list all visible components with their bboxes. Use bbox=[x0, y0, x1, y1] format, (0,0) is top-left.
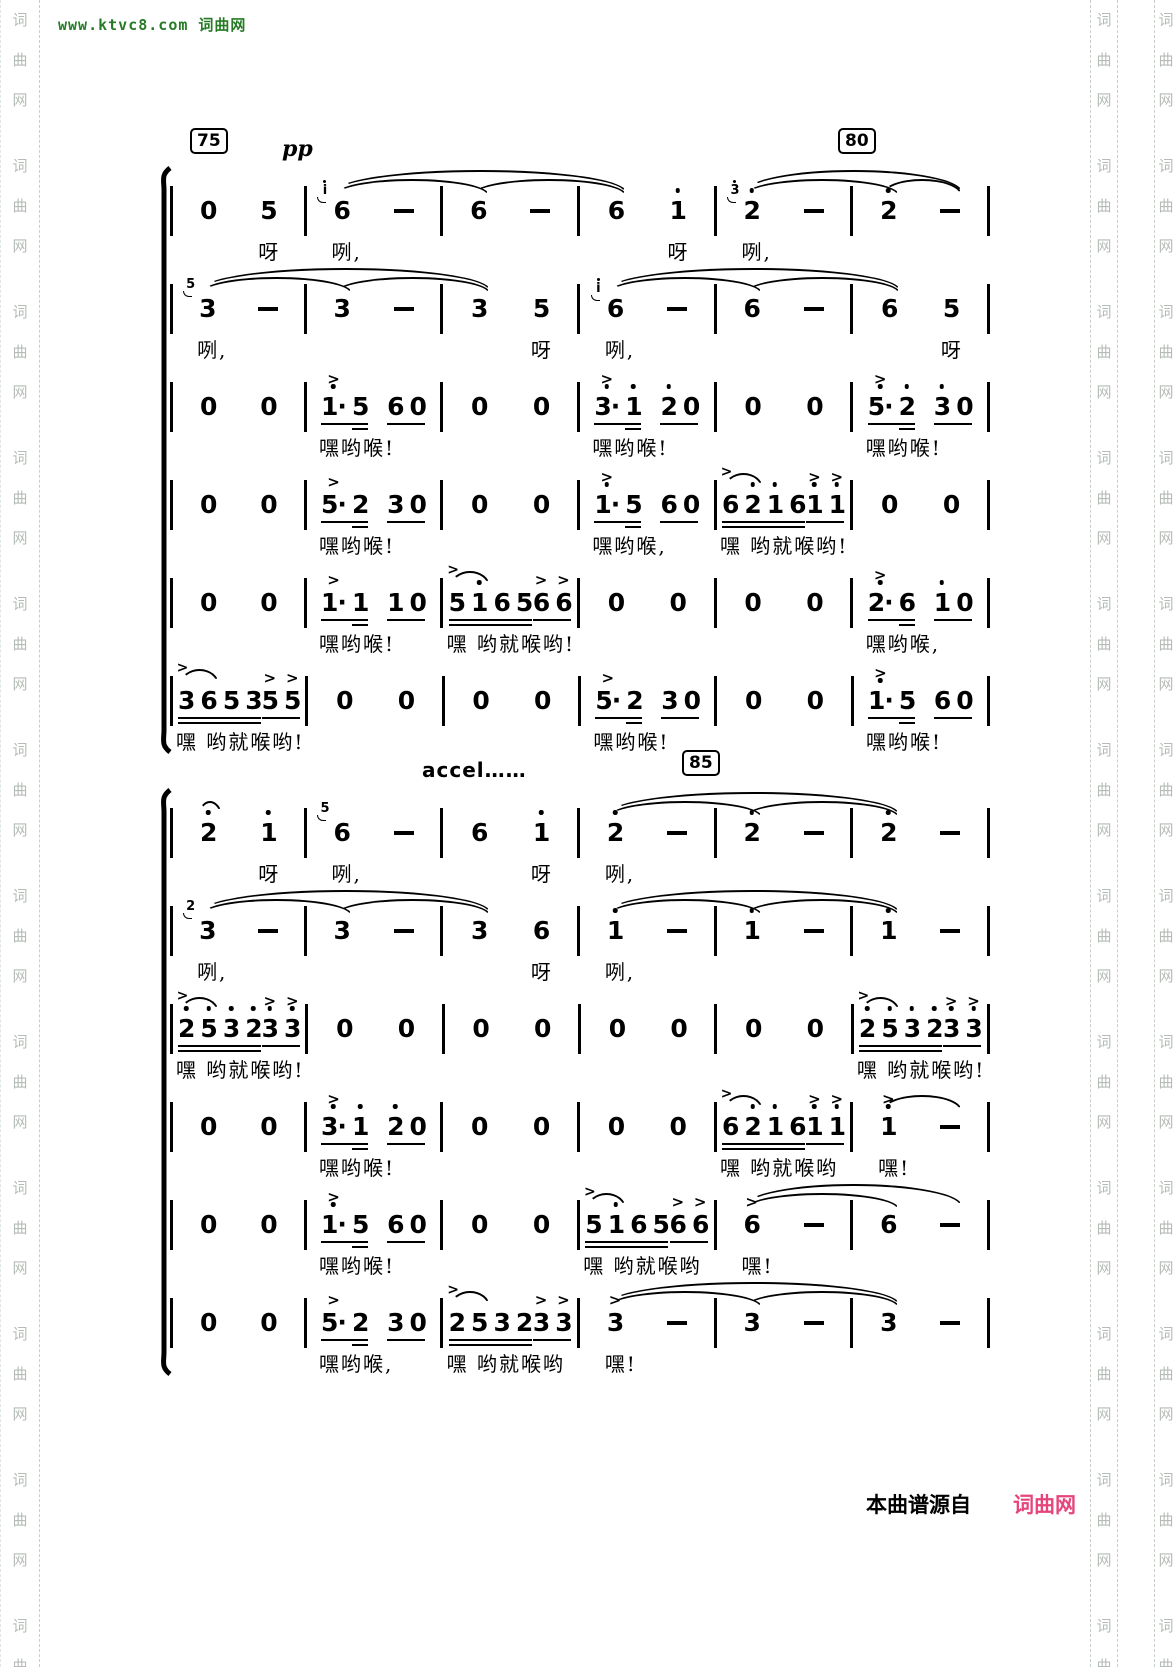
duration-dash bbox=[804, 1223, 824, 1226]
watermark-character: 词 bbox=[1091, 1314, 1117, 1354]
grace-number: 3 bbox=[730, 184, 739, 197]
note-number: 2 bbox=[516, 1309, 532, 1337]
note-number: 6 bbox=[200, 687, 216, 715]
rest-token: 0 bbox=[533, 1210, 549, 1240]
note-number: 3 bbox=[493, 1309, 509, 1337]
note-number: 1 bbox=[767, 1113, 783, 1141]
measure-number-box: 80 bbox=[838, 128, 876, 154]
note-token: 2 bbox=[660, 392, 676, 422]
watermark-gap bbox=[1155, 1434, 1176, 1460]
note-token: 1 bbox=[767, 1112, 783, 1142]
watermark-gap bbox=[1091, 558, 1117, 584]
note-number: 0 bbox=[533, 1211, 549, 1239]
beam-group: 1·>5 bbox=[868, 686, 915, 716]
right-watermark-column: 词曲网词曲网词曲网词曲网词曲网词曲网词曲网词曲网词曲网词曲网词曲网词曲网 bbox=[1090, 0, 1118, 1667]
note-token: 3 bbox=[743, 1308, 759, 1338]
note-number: 0 bbox=[670, 1015, 686, 1043]
slur-arc: > bbox=[724, 1095, 764, 1111]
system-marks: accel……85 bbox=[170, 748, 990, 788]
duration-dash bbox=[667, 1321, 687, 1324]
beam-group: 60 bbox=[387, 392, 426, 422]
octave-dot bbox=[631, 384, 636, 389]
note-number: 6 bbox=[743, 295, 759, 323]
lyric-text: 嘿 哟就喉哟 bbox=[583, 1250, 701, 1279]
footer: 本曲谱源自 词曲网 bbox=[866, 1489, 1076, 1519]
accent-mark: > bbox=[808, 1090, 821, 1108]
note-number: 6 bbox=[471, 819, 487, 847]
note-number: 5 bbox=[533, 295, 549, 323]
accent-mark: > bbox=[858, 988, 870, 1004]
lyric-text: 嘿 哟就喉哟! bbox=[857, 1054, 985, 1083]
beam-line bbox=[595, 717, 642, 719]
beam-group: 20 bbox=[387, 1112, 426, 1142]
note-token: 3> bbox=[943, 1014, 959, 1044]
watermark-gap bbox=[1, 850, 39, 876]
beam-line bbox=[352, 624, 368, 626]
dash-token bbox=[804, 916, 824, 946]
note-number: 2 bbox=[899, 393, 915, 421]
note-number: 0 bbox=[670, 589, 686, 617]
note-number: 3· bbox=[321, 1113, 346, 1141]
note-token: 6> bbox=[533, 588, 549, 618]
watermark-character: 曲 bbox=[1, 1646, 39, 1667]
note-number: 6 bbox=[387, 1211, 403, 1239]
note-token: 2 bbox=[926, 1014, 942, 1044]
rest-token: 0 bbox=[471, 1210, 487, 1240]
watermark-character: 词 bbox=[1155, 584, 1176, 624]
rest-token: 0 bbox=[260, 392, 276, 422]
measure-row: 36535>5>00005·>230001·>560 bbox=[170, 676, 990, 726]
note-number: 5 bbox=[881, 1015, 897, 1043]
note-number: 2· bbox=[868, 589, 893, 617]
lyric-text: 呀 bbox=[258, 858, 280, 887]
watermark-gap bbox=[1, 558, 39, 584]
watermark-character: 网 bbox=[1, 1248, 39, 1288]
grace-note: 5 bbox=[320, 802, 329, 821]
rest-token: 0 bbox=[806, 588, 822, 618]
watermark-gap bbox=[1, 704, 39, 730]
note-token: 5 bbox=[200, 1014, 216, 1044]
rest-token: 0 bbox=[410, 392, 426, 422]
watermark-character: 网 bbox=[1091, 226, 1117, 266]
measure: 65 bbox=[307, 808, 444, 858]
measure: 00 bbox=[717, 382, 854, 432]
measure: 5·>230 bbox=[307, 1298, 444, 1348]
note-number: 6 bbox=[333, 197, 349, 225]
duration-dash bbox=[940, 209, 960, 212]
accent-mark: > bbox=[327, 1291, 340, 1309]
note-number: 3 bbox=[471, 295, 487, 323]
note-number: 0 bbox=[471, 393, 487, 421]
note-number: 3 bbox=[661, 687, 677, 715]
beam-group: 30 bbox=[387, 490, 426, 520]
beam-line bbox=[585, 1246, 668, 1248]
beam-group: 60 bbox=[934, 686, 973, 716]
beam-group: 1·>1 bbox=[321, 588, 368, 618]
lyric-text: 嘿哟喉! bbox=[319, 1250, 395, 1279]
watermark-character: 网 bbox=[1155, 226, 1176, 266]
music-line-voice-5: 001·>5600051656>6>6>6>嘿哟喉!嘿 哟就喉哟嘿! bbox=[170, 1180, 990, 1278]
note-number: 0 bbox=[684, 687, 700, 715]
watermark-character: 网 bbox=[1155, 810, 1176, 850]
note-number: 0 bbox=[609, 1015, 625, 1043]
watermark-character: 词 bbox=[1155, 1460, 1176, 1500]
beam-line bbox=[594, 521, 641, 523]
watermark-character: 网 bbox=[1091, 1248, 1117, 1288]
note-token: 6 bbox=[471, 818, 487, 848]
dash-token bbox=[804, 1210, 824, 1240]
note-number: 3 bbox=[965, 1015, 981, 1043]
note-number: 0 bbox=[471, 1211, 487, 1239]
watermark-character: 曲 bbox=[1091, 624, 1117, 664]
octave-dot bbox=[905, 384, 910, 389]
watermark-character: 曲 bbox=[1091, 916, 1117, 956]
rest-token: 0 bbox=[398, 686, 414, 716]
music-line-voice-1: 216561222呀咧,呀咧, bbox=[170, 788, 990, 886]
footer-brand-link[interactable]: 词曲网 bbox=[1013, 1489, 1076, 1519]
note-token: 3 bbox=[904, 1014, 920, 1044]
note-number: 0 bbox=[881, 491, 897, 519]
note-token: 5> bbox=[262, 686, 278, 716]
watermark-character: 曲 bbox=[1, 186, 39, 226]
measure: 1·>110 bbox=[307, 578, 444, 628]
note-token: 1> bbox=[880, 1112, 896, 1142]
grace-note: i bbox=[320, 180, 329, 203]
rest-token: 0 bbox=[807, 686, 823, 716]
rest-token: 0 bbox=[745, 686, 761, 716]
rest-token: 0 bbox=[806, 392, 822, 422]
watermark-character: 网 bbox=[1091, 810, 1117, 850]
note-token: 2 bbox=[352, 490, 368, 520]
note-number: 1· bbox=[321, 393, 346, 421]
note-number: 0 bbox=[260, 1309, 276, 1337]
note-number: 3· bbox=[594, 393, 619, 421]
measure: 00 bbox=[581, 1004, 717, 1054]
slur-arc: > bbox=[180, 669, 220, 685]
beam-line bbox=[670, 1241, 708, 1243]
note-number: 0 bbox=[410, 1309, 426, 1337]
note-number: 5 bbox=[200, 1015, 216, 1043]
measure: 1·>560 bbox=[307, 1200, 444, 1250]
note-number: 6 bbox=[608, 197, 624, 225]
note-number: 5· bbox=[868, 393, 893, 421]
accent-mark: > bbox=[447, 1282, 459, 1298]
watermark-character: 曲 bbox=[1155, 186, 1176, 226]
rest-token: 0 bbox=[472, 686, 488, 716]
note-number: 6 bbox=[743, 1211, 759, 1239]
watermark-gap bbox=[1, 1288, 39, 1314]
watermark-character: 词 bbox=[1, 1022, 39, 1062]
measure: 00 bbox=[580, 1102, 717, 1152]
note-number: 5 bbox=[625, 491, 641, 519]
watermark-character: 网 bbox=[1155, 956, 1176, 996]
measure: 00 bbox=[170, 1200, 307, 1250]
measure: 00 bbox=[717, 578, 854, 628]
beam-line bbox=[934, 717, 972, 719]
watermark-gap bbox=[1091, 120, 1117, 146]
watermark-gap bbox=[1, 266, 39, 292]
note-token: 1 bbox=[767, 490, 783, 520]
watermark-character: 词 bbox=[1, 292, 39, 332]
beam-line bbox=[387, 1241, 425, 1243]
rest-token: 0 bbox=[956, 686, 972, 716]
watermark-gap bbox=[1091, 704, 1117, 730]
grace-number: 5 bbox=[186, 278, 195, 291]
lyric-text: 嘿哟喉! bbox=[319, 1152, 395, 1181]
note-number: 1· bbox=[868, 687, 893, 715]
accent-mark: > bbox=[327, 1188, 340, 1206]
duration-dash bbox=[804, 1321, 824, 1324]
note-number: 0 bbox=[410, 393, 426, 421]
beam-line bbox=[859, 1050, 942, 1052]
note-number: 5· bbox=[321, 491, 346, 519]
beam-line bbox=[321, 1143, 368, 1145]
note-token: 5 bbox=[585, 1210, 601, 1240]
note-token: 1 bbox=[471, 588, 487, 618]
note-token: 3 bbox=[471, 294, 487, 324]
rest-token: 0 bbox=[200, 196, 216, 226]
rest-token: 0 bbox=[200, 392, 216, 422]
dash-token bbox=[804, 1308, 824, 1338]
lyric-text: 呀 bbox=[531, 858, 553, 887]
music-line-voice-3: 25323>3>0000000025323>3>>>嘿 哟就喉哟!嘿 哟就喉哟! bbox=[170, 984, 990, 1082]
dash-token bbox=[667, 1308, 687, 1338]
rest-token: 0 bbox=[534, 686, 550, 716]
beam-group: 6216 bbox=[722, 1112, 806, 1142]
octave-dot bbox=[932, 1006, 937, 1011]
watermark-gap bbox=[1155, 266, 1176, 292]
accent-mark: > bbox=[286, 992, 299, 1010]
dash-token bbox=[667, 818, 687, 848]
watermark-character: 网 bbox=[1155, 80, 1176, 120]
grace-number: 5 bbox=[320, 802, 329, 815]
measure-row: 003·>120000062161>1>1> bbox=[170, 1102, 990, 1152]
note-token: 6> bbox=[743, 1210, 759, 1240]
duration-dash bbox=[804, 929, 824, 932]
note-number: 0 bbox=[533, 1113, 549, 1141]
note-number: 2 bbox=[880, 819, 896, 847]
note-number: 3 bbox=[284, 1015, 300, 1043]
note-number: 6 bbox=[607, 295, 623, 323]
measure: 5·>230 bbox=[581, 676, 717, 726]
watermark-character: 网 bbox=[1155, 1540, 1176, 1580]
rest-token: 0 bbox=[260, 588, 276, 618]
note-token: 5·> bbox=[868, 392, 893, 422]
note-number: 0 bbox=[533, 491, 549, 519]
accent-mark: > bbox=[694, 1193, 707, 1211]
accent-mark: > bbox=[945, 992, 958, 1010]
note-token: 1 bbox=[670, 196, 686, 226]
note-token: 1·> bbox=[868, 686, 893, 716]
music-line-voice-4: 003·>120000062161>1>1>>嘿哟喉!嘿 哟就喉哟嘿! bbox=[170, 1082, 990, 1180]
grace-slide-hook bbox=[317, 197, 326, 203]
watermark-character: 曲 bbox=[1, 624, 39, 664]
note-token: 2 bbox=[744, 490, 760, 520]
watermark-character: 网 bbox=[1091, 1540, 1117, 1580]
beam-line bbox=[626, 722, 642, 724]
watermark-gap bbox=[1, 1434, 39, 1460]
note-number: 2 bbox=[352, 491, 368, 519]
note-number: 3 bbox=[387, 491, 403, 519]
rest-token: 0 bbox=[410, 588, 426, 618]
measure: 00 bbox=[445, 1004, 581, 1054]
beam-line bbox=[352, 526, 368, 528]
beam-line bbox=[868, 423, 915, 425]
note-number: 6 bbox=[493, 589, 509, 617]
watermark-character: 词 bbox=[1155, 1606, 1176, 1646]
note-token: 5 bbox=[449, 588, 465, 618]
note-number: 0 bbox=[472, 1015, 488, 1043]
note-number: 2 bbox=[744, 1113, 760, 1141]
dash-token bbox=[940, 1112, 960, 1142]
watermark-character: 曲 bbox=[1155, 916, 1176, 956]
measure: 00 bbox=[170, 480, 307, 530]
note-token: 3> bbox=[533, 1308, 549, 1338]
site-watermark: www.ktvc8.com 词曲网 bbox=[58, 14, 246, 35]
watermark-character: 网 bbox=[1155, 1102, 1176, 1142]
rest-token: 0 bbox=[260, 1112, 276, 1142]
note-number: 5 bbox=[223, 687, 239, 715]
beam-line bbox=[594, 423, 641, 425]
accent-mark: > bbox=[327, 1090, 340, 1108]
watermark-character: 曲 bbox=[1155, 1062, 1176, 1102]
note-number: 0 bbox=[806, 589, 822, 617]
lyric-text: 嘿哟喉! bbox=[319, 628, 395, 657]
watermark-gap bbox=[1, 1142, 39, 1168]
lyric-text: 咧, bbox=[605, 956, 635, 985]
note-number: 1 bbox=[608, 1211, 624, 1239]
lyric-text: 嘿 哟就喉哟! bbox=[720, 530, 848, 559]
watermark-character: 网 bbox=[1155, 518, 1176, 558]
dash-token bbox=[394, 294, 414, 324]
accent-mark: > bbox=[264, 992, 277, 1010]
note-token: 3 bbox=[245, 686, 261, 716]
watermark-character: 词 bbox=[1155, 146, 1176, 186]
dash-token bbox=[804, 294, 824, 324]
note-number: 5 bbox=[899, 687, 915, 715]
measure: 3·>120 bbox=[307, 1102, 444, 1152]
watermark-character: 网 bbox=[1, 372, 39, 412]
watermark-character: 网 bbox=[1, 810, 39, 850]
note-number: 0 bbox=[745, 1015, 761, 1043]
note-number: 0 bbox=[410, 589, 426, 617]
watermark-character: 曲 bbox=[1155, 1354, 1176, 1394]
note-token: 1 bbox=[533, 818, 549, 848]
dash-token bbox=[258, 916, 278, 946]
watermark-gap bbox=[1091, 412, 1117, 438]
duration-dash bbox=[804, 307, 824, 310]
measure: 00 bbox=[717, 1004, 853, 1054]
note-number: 0 bbox=[200, 1211, 216, 1239]
note-token: 1 bbox=[352, 1112, 368, 1142]
system-marks: 75pp80 bbox=[170, 126, 990, 166]
measure: 00 bbox=[717, 676, 853, 726]
dash-token bbox=[940, 818, 960, 848]
measure-number-box: 85 bbox=[682, 750, 720, 776]
watermark-gap bbox=[1, 1580, 39, 1606]
beam-line bbox=[178, 717, 261, 719]
lyric-text: 嘿哟喉, bbox=[866, 628, 940, 657]
note-token: 6 bbox=[743, 294, 759, 324]
watermark-character: 曲 bbox=[1091, 1500, 1117, 1540]
note-number: 5 bbox=[471, 1309, 487, 1337]
octave-dot bbox=[910, 1006, 915, 1011]
lyric-text: 嘿 哟就喉哟! bbox=[176, 1054, 304, 1083]
beam-line bbox=[533, 1339, 571, 1341]
note-token: 5 bbox=[223, 686, 239, 716]
note-token: 1 bbox=[260, 818, 276, 848]
note-token: 2 bbox=[859, 1014, 875, 1044]
note-token: 1·> bbox=[321, 588, 346, 618]
note-token: 5·> bbox=[595, 686, 620, 716]
lyric-text: 嘿! bbox=[878, 1152, 910, 1181]
measure: 1·>560 bbox=[307, 382, 444, 432]
octave-dot bbox=[666, 384, 671, 389]
dash-token bbox=[530, 196, 550, 226]
octave-dot bbox=[940, 384, 945, 389]
watermark-gap bbox=[1091, 1580, 1117, 1606]
note-number: 1· bbox=[321, 1211, 346, 1239]
measure-row: 001·>560003·>120005·>230 bbox=[170, 382, 990, 432]
watermark-character: 网 bbox=[1, 956, 39, 996]
beam-group: 5>5> bbox=[262, 686, 301, 716]
lyric-text: 咧, bbox=[331, 236, 361, 265]
watermark-character: 网 bbox=[1155, 372, 1176, 412]
lyric-text: 呀 bbox=[531, 334, 553, 363]
watermark-character: 曲 bbox=[1155, 332, 1176, 372]
note-number: 0 bbox=[200, 491, 216, 519]
octave-dot bbox=[251, 1006, 256, 1011]
note-token: 2·> bbox=[868, 588, 893, 618]
note-token: 3·> bbox=[594, 392, 619, 422]
rest-token: 0 bbox=[670, 588, 686, 618]
rest-token: 0 bbox=[609, 1014, 625, 1044]
note-number: 6 bbox=[692, 1211, 708, 1239]
watermark-character: 词 bbox=[1, 730, 39, 770]
accent-mark: > bbox=[327, 571, 340, 589]
note-number: 1 bbox=[471, 589, 487, 617]
beam-line bbox=[178, 1050, 261, 1052]
rest-token: 0 bbox=[683, 490, 699, 520]
measure: 61 bbox=[443, 808, 580, 858]
beam-line bbox=[722, 1143, 805, 1145]
beam-line bbox=[262, 717, 300, 719]
note-token: 6> bbox=[555, 588, 571, 618]
note-token: 1 bbox=[352, 588, 368, 618]
accent-mark: > bbox=[535, 571, 548, 589]
note-token: 1·> bbox=[321, 392, 346, 422]
dash-token bbox=[394, 916, 414, 946]
watermark-character: 词 bbox=[1155, 1168, 1176, 1208]
measure: 00 bbox=[443, 480, 580, 530]
rest-token: 0 bbox=[608, 1112, 624, 1142]
watermark-character: 网 bbox=[1, 226, 39, 266]
note-number: 0 bbox=[200, 1113, 216, 1141]
accent-mark: > bbox=[264, 669, 277, 687]
measure: 00 bbox=[308, 1004, 444, 1054]
beam-group: 30 bbox=[387, 1308, 426, 1338]
note-token: 5> bbox=[284, 686, 300, 716]
beam-line bbox=[934, 423, 972, 425]
octave-dot bbox=[773, 482, 778, 487]
note-number: 0 bbox=[471, 491, 487, 519]
grace-note: 3 bbox=[730, 180, 739, 203]
beam-line bbox=[661, 717, 699, 719]
note-token: 3 bbox=[880, 1308, 896, 1338]
measure: 00 bbox=[170, 578, 307, 628]
note-token: 5·> bbox=[321, 1308, 346, 1338]
beam-line bbox=[352, 1148, 368, 1150]
